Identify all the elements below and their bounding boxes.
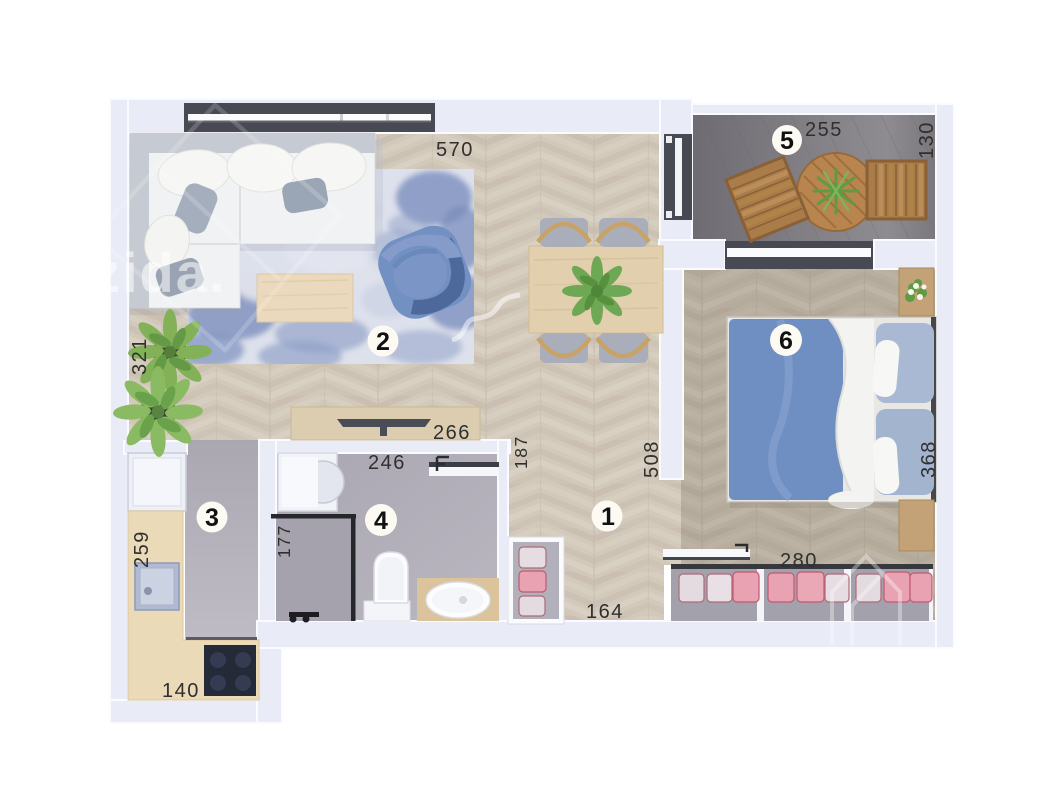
svg-text:5: 5	[780, 127, 794, 155]
svg-text:266: 266	[433, 422, 471, 444]
svg-text:255: 255	[805, 119, 843, 141]
svg-text:259: 259	[131, 530, 153, 568]
svg-text:4: 4	[374, 507, 388, 535]
svg-text:177: 177	[274, 524, 294, 558]
svg-text:246: 246	[368, 452, 406, 474]
svg-text:3: 3	[205, 504, 219, 532]
svg-text:130: 130	[916, 121, 938, 159]
svg-text:280: 280	[780, 550, 818, 572]
svg-text:508: 508	[641, 440, 663, 478]
svg-text:321: 321	[129, 337, 151, 375]
svg-text:140: 140	[162, 680, 200, 702]
svg-text:2: 2	[376, 328, 390, 356]
svg-text:187: 187	[511, 435, 531, 469]
svg-text:164: 164	[586, 601, 624, 623]
svg-text:368: 368	[918, 440, 940, 478]
svg-text:6: 6	[779, 327, 793, 355]
svg-text:1: 1	[601, 503, 615, 531]
svg-text:570: 570	[436, 139, 474, 161]
